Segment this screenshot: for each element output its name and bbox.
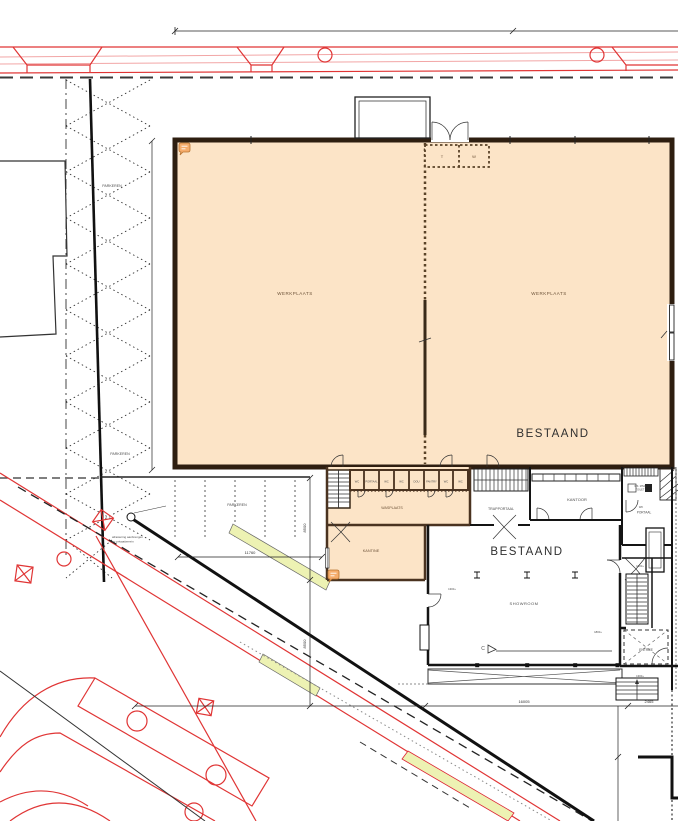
trapportaal-label: TRAPPORTAAL — [488, 507, 514, 511]
dim-2465: 2465 — [645, 699, 655, 704]
parkeren-label-3: PARKEREN — [227, 503, 247, 507]
portaal-label: PORTAAL — [637, 511, 652, 515]
road-manhole-circle — [590, 48, 604, 62]
neighbor-building-outline — [0, 161, 67, 337]
storefront-canopy — [398, 669, 622, 684]
trapportaal: TRAPPORTAAL — [474, 469, 528, 539]
werkplaats-right-label: WERKPLAATS — [531, 291, 566, 296]
level-label: 1800+ — [636, 564, 644, 568]
top-dimension-line — [172, 27, 678, 35]
street-marker-xbox — [15, 565, 33, 583]
small-room-label: DOU — [414, 480, 420, 484]
west-dimension-line — [149, 138, 155, 473]
column-markers — [474, 572, 578, 578]
grass-verge — [259, 654, 320, 696]
kantine-label: KANTINE — [363, 549, 380, 553]
kantoor-doors — [537, 508, 592, 520]
west-staircase — [327, 470, 350, 508]
site-plan-drawing: T W WERKPLAATS WERKPLAATS BESTAAND — [0, 0, 678, 821]
right-block: WK. MIVA TOILET WK PORTAAL — [624, 468, 678, 580]
hall-building: T W WERKPLAATS WERKPLAATS BESTAAND — [175, 97, 677, 467]
entree: ENTREE — [620, 628, 678, 666]
werkplaats-left-label: WERKPLAATS — [277, 291, 312, 296]
site-notes: afrastering aanbrengen op privaatterrein — [112, 535, 143, 544]
roof-protrusion — [355, 97, 430, 138]
west-boundary-hatch — [66, 79, 150, 582]
street-marker-xbox — [196, 698, 213, 715]
bestaand-lower-label: BESTAAND — [490, 546, 563, 558]
north-road — [0, 47, 678, 78]
street-parking-strip — [78, 678, 269, 806]
small-room-label: WC — [444, 480, 449, 484]
fence-note-1: afrastering aanbrengen — [112, 535, 143, 539]
room-w-label: W — [472, 154, 476, 159]
exterior-steps — [616, 678, 658, 700]
small-room-label: WC — [458, 480, 463, 484]
trapportaal-double-door — [493, 515, 516, 539]
dim-11760: 11760 — [245, 550, 257, 555]
level-label: 1300+ — [448, 587, 456, 591]
dim-8500-b: 8500 — [302, 639, 307, 649]
level-label: 1300+ — [636, 674, 644, 678]
toilet-rooms: T W — [425, 145, 489, 167]
kantoor-label: KANTOOR — [567, 497, 587, 502]
boundary-thick-line — [90, 79, 104, 582]
section-marker-c: C — [481, 645, 612, 653]
parkeren-label-1: PARKEREN — [102, 184, 122, 188]
showroom-label: SHOWROOM — [510, 601, 539, 606]
kantoor: KANTOOR — [532, 474, 620, 520]
annex-rooms: WC PORTAAL WC WC DOU PANTRY WC WC WASPLA… — [325, 467, 470, 582]
svg-text:C: C — [481, 646, 485, 652]
miva-label-2: TOILET — [636, 489, 645, 492]
dim-16005: 16005 — [518, 699, 530, 704]
level-label: 1800+ — [594, 630, 602, 634]
parkeren-label-2: PARKEREN — [110, 452, 130, 456]
southeast-walls — [638, 690, 678, 821]
small-room-label: WC — [399, 480, 404, 484]
grass-verge — [402, 751, 514, 821]
entree-label: ENTREE — [639, 648, 653, 652]
dim-8500-a: 8500 — [302, 523, 307, 533]
boundary-diagonals — [0, 487, 594, 821]
small-room-label: WC — [355, 480, 360, 484]
pilaster — [420, 625, 429, 650]
fence-note-2: op privaatterrein — [112, 540, 134, 544]
small-room-label: WC — [384, 480, 389, 484]
bestaand-hall-label: BESTAAND — [516, 428, 589, 440]
wk-label: WK — [639, 505, 643, 509]
site-plan-page: T W WERKPLAATS WERKPLAATS BESTAAND — [0, 0, 678, 821]
wasplaats-label: WASPLAATS — [381, 506, 403, 510]
small-room-label: PANTRY — [426, 480, 437, 484]
small-room-label: PORTAAL — [365, 480, 378, 484]
